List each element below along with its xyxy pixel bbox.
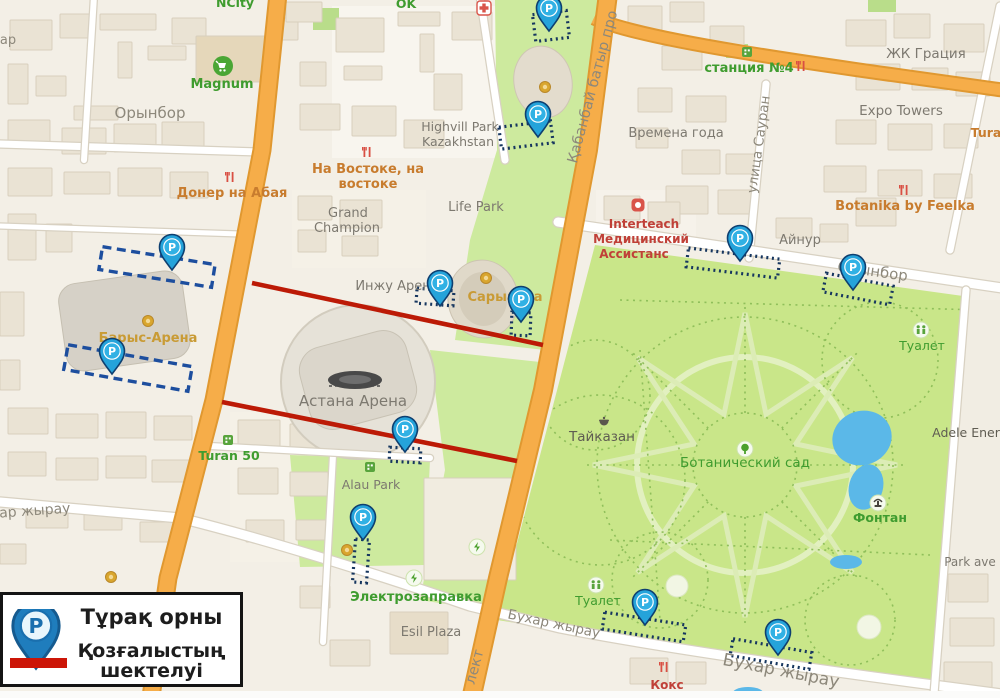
map-label: Туалет (898, 338, 945, 353)
map-label: Tura (971, 125, 1000, 140)
building (824, 166, 866, 192)
building (300, 104, 340, 130)
building (820, 224, 848, 242)
svg-text:P: P (168, 241, 176, 254)
building (298, 196, 332, 220)
building (64, 172, 110, 194)
building (638, 88, 672, 112)
building (56, 414, 98, 438)
building (8, 168, 52, 196)
svg-text:P: P (736, 232, 744, 245)
map-label: Инжу Арена (355, 279, 438, 294)
ev-icon (469, 539, 485, 555)
building (420, 34, 434, 72)
building (196, 36, 266, 82)
map-label: Айнур (779, 233, 821, 248)
medpin-icon (632, 199, 645, 212)
legend-restriction-line1: Қозғалыстың (69, 642, 234, 661)
building (106, 412, 146, 438)
map-label: Орынбор (115, 104, 186, 122)
map-label: станция №4 (704, 61, 793, 76)
map-label: Электрозаправка (350, 590, 482, 605)
building (682, 150, 720, 174)
map-label: Alau Park (342, 477, 401, 492)
ev-icon (406, 570, 422, 586)
medal-icon (106, 572, 117, 583)
building (0, 292, 24, 336)
building (836, 120, 876, 144)
map-label: Ассистанс (599, 247, 669, 261)
svg-text:P: P (436, 277, 444, 290)
building (56, 458, 98, 480)
building (238, 468, 278, 494)
building (888, 124, 932, 150)
building (118, 42, 132, 78)
building (894, 14, 930, 38)
building (878, 170, 922, 196)
wc-icon (588, 577, 604, 593)
svg-text:P: P (108, 345, 116, 358)
map-label: Champion (314, 221, 380, 236)
svg-text:P: P (29, 614, 44, 638)
building-icon (223, 435, 233, 445)
building (286, 2, 322, 22)
svg-text:P: P (401, 423, 409, 436)
map-label: Донер на Абая (177, 186, 288, 201)
restriction-line-swatch (10, 658, 67, 668)
building (10, 20, 52, 50)
map-label: На Востоке, на (312, 162, 424, 177)
map-label: Тайказан (568, 429, 635, 445)
building (344, 66, 382, 80)
building (300, 62, 326, 86)
building (948, 574, 988, 602)
building (0, 360, 20, 390)
building-icon (742, 47, 752, 57)
map-label: Life Park (448, 200, 504, 215)
medal-icon (342, 545, 353, 556)
map-label: Interteach (609, 217, 679, 231)
magnum-icon (213, 56, 233, 76)
building (330, 640, 370, 666)
map-label: Adele Ener (932, 425, 1000, 440)
building (8, 214, 36, 260)
building (342, 236, 378, 256)
building (8, 408, 48, 434)
svg-text:P: P (534, 108, 542, 121)
svg-text:P: P (545, 2, 553, 15)
map-label: Grand (328, 206, 368, 221)
building (434, 74, 462, 110)
building (118, 168, 162, 196)
map-label: NCity (216, 0, 254, 10)
map-label: Esil Plaza (401, 625, 462, 640)
building (336, 18, 384, 52)
map-label: востоке (339, 177, 398, 192)
map-label: Ботанический сад (680, 455, 810, 471)
building (352, 106, 396, 136)
building (74, 106, 118, 120)
map-label: OK (396, 0, 418, 11)
map-label: Turan 50 (198, 448, 260, 463)
fountain-icon (870, 495, 886, 511)
map-label: ар (0, 33, 16, 48)
map-label: Туалет (574, 593, 621, 608)
building (60, 14, 92, 38)
building (670, 2, 704, 22)
building (8, 64, 28, 104)
map-label: ЖК Грация (886, 46, 966, 62)
medal-icon (143, 316, 154, 327)
park-plaza-circle (666, 575, 688, 597)
svg-text:P: P (517, 293, 525, 306)
map-label: Highvill Park (421, 119, 499, 134)
park-plaza-circle (857, 615, 881, 639)
building (100, 14, 156, 30)
stadium-icon (328, 371, 382, 389)
medal-icon (540, 82, 551, 93)
map-label: Magnum (190, 77, 253, 92)
map-label: Фонтан (853, 510, 907, 525)
legend-restriction-line2: шектелуі (69, 662, 234, 681)
svg-text:P: P (849, 261, 857, 274)
legend: P Тұрақ орны Қозғалыстың шектелуі (0, 592, 243, 687)
map-label: Kazakhstan (422, 134, 494, 149)
map-screenshot: ОрынборОрынборБухар жырауБухар жырауБуха… (0, 0, 1000, 698)
map-label: Botanika by Feelka (835, 199, 975, 214)
building (398, 12, 440, 26)
medcross-icon (477, 1, 491, 15)
building (846, 20, 886, 46)
building (290, 472, 328, 496)
legend-restriction-label: Қозғалыстың шектелуі (69, 642, 240, 681)
svg-text:P: P (641, 596, 649, 609)
bottom-strip (0, 691, 1000, 698)
medal-icon (481, 273, 492, 284)
svg-text:P: P (359, 511, 367, 524)
map-label: Времена года (628, 126, 723, 141)
map-label: Park ave (944, 555, 996, 569)
building-icon (365, 462, 375, 472)
building (36, 76, 66, 96)
barys-arena-building (56, 269, 192, 374)
building (154, 416, 192, 440)
building (106, 456, 146, 478)
building (0, 544, 26, 564)
wc-icon (913, 322, 929, 338)
legend-parking-label: Тұрақ орны (69, 605, 240, 629)
svg-text:P: P (774, 626, 782, 639)
building (8, 452, 46, 476)
map-label: Медицинский (593, 232, 689, 246)
map-label: Кокс (650, 678, 683, 692)
map-label: Астана Арена (299, 392, 407, 410)
building (686, 96, 726, 122)
building (148, 46, 186, 60)
map-label: Expo Towers (859, 103, 943, 119)
building (950, 618, 994, 646)
